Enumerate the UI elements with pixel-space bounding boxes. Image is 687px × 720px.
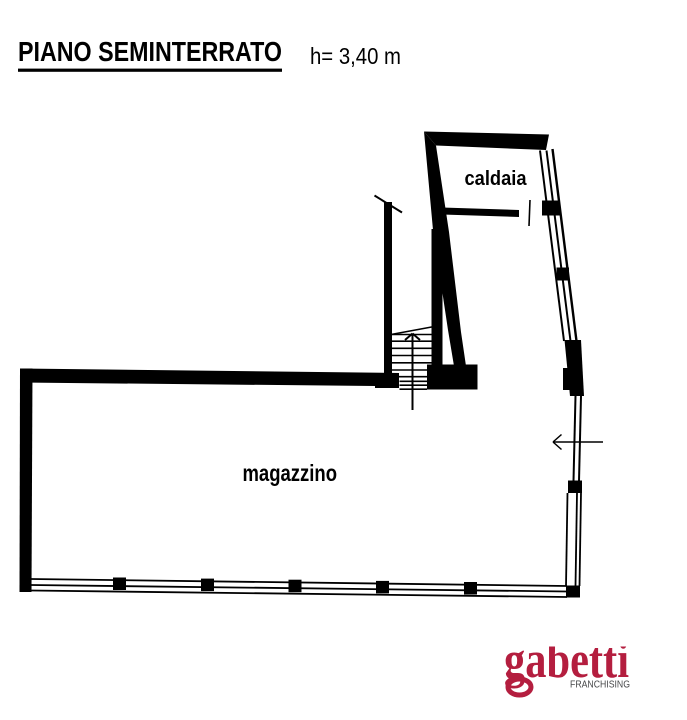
svg-text:magazzino: magazzino [243,460,338,486]
svg-text:FRANCHISING: FRANCHISING [570,679,630,691]
svg-text:PIANO SEMINTERRATO: PIANO SEMINTERRATO [18,36,282,67]
svg-text:h= 3,40 m: h= 3,40 m [310,43,401,69]
svg-text:caldaia: caldaia [465,168,528,190]
